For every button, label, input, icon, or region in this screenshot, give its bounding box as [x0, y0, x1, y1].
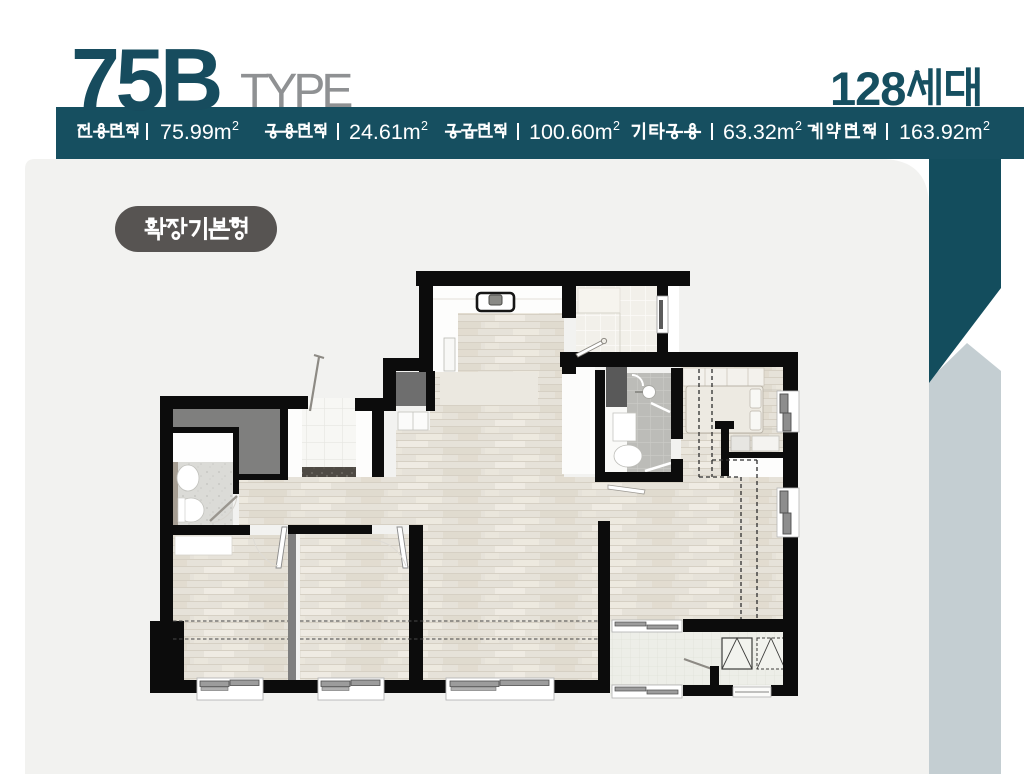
svg-text:TYPE: TYPE: [240, 65, 351, 118]
svg-text:2: 2: [983, 119, 990, 133]
svg-text:75.99m: 75.99m: [160, 120, 232, 144]
svg-text:2: 2: [232, 119, 239, 133]
svg-text:2: 2: [613, 119, 620, 133]
svg-text:24.61m: 24.61m: [349, 120, 421, 144]
svg-text:75B: 75B: [71, 30, 220, 129]
svg-text:128: 128: [830, 62, 905, 115]
svg-text:2: 2: [795, 119, 802, 133]
svg-text:163.92m: 163.92m: [899, 120, 983, 144]
svg-text:2: 2: [421, 119, 428, 133]
svg-text:63.32m: 63.32m: [723, 120, 795, 144]
svg-text:100.60m: 100.60m: [529, 120, 613, 144]
